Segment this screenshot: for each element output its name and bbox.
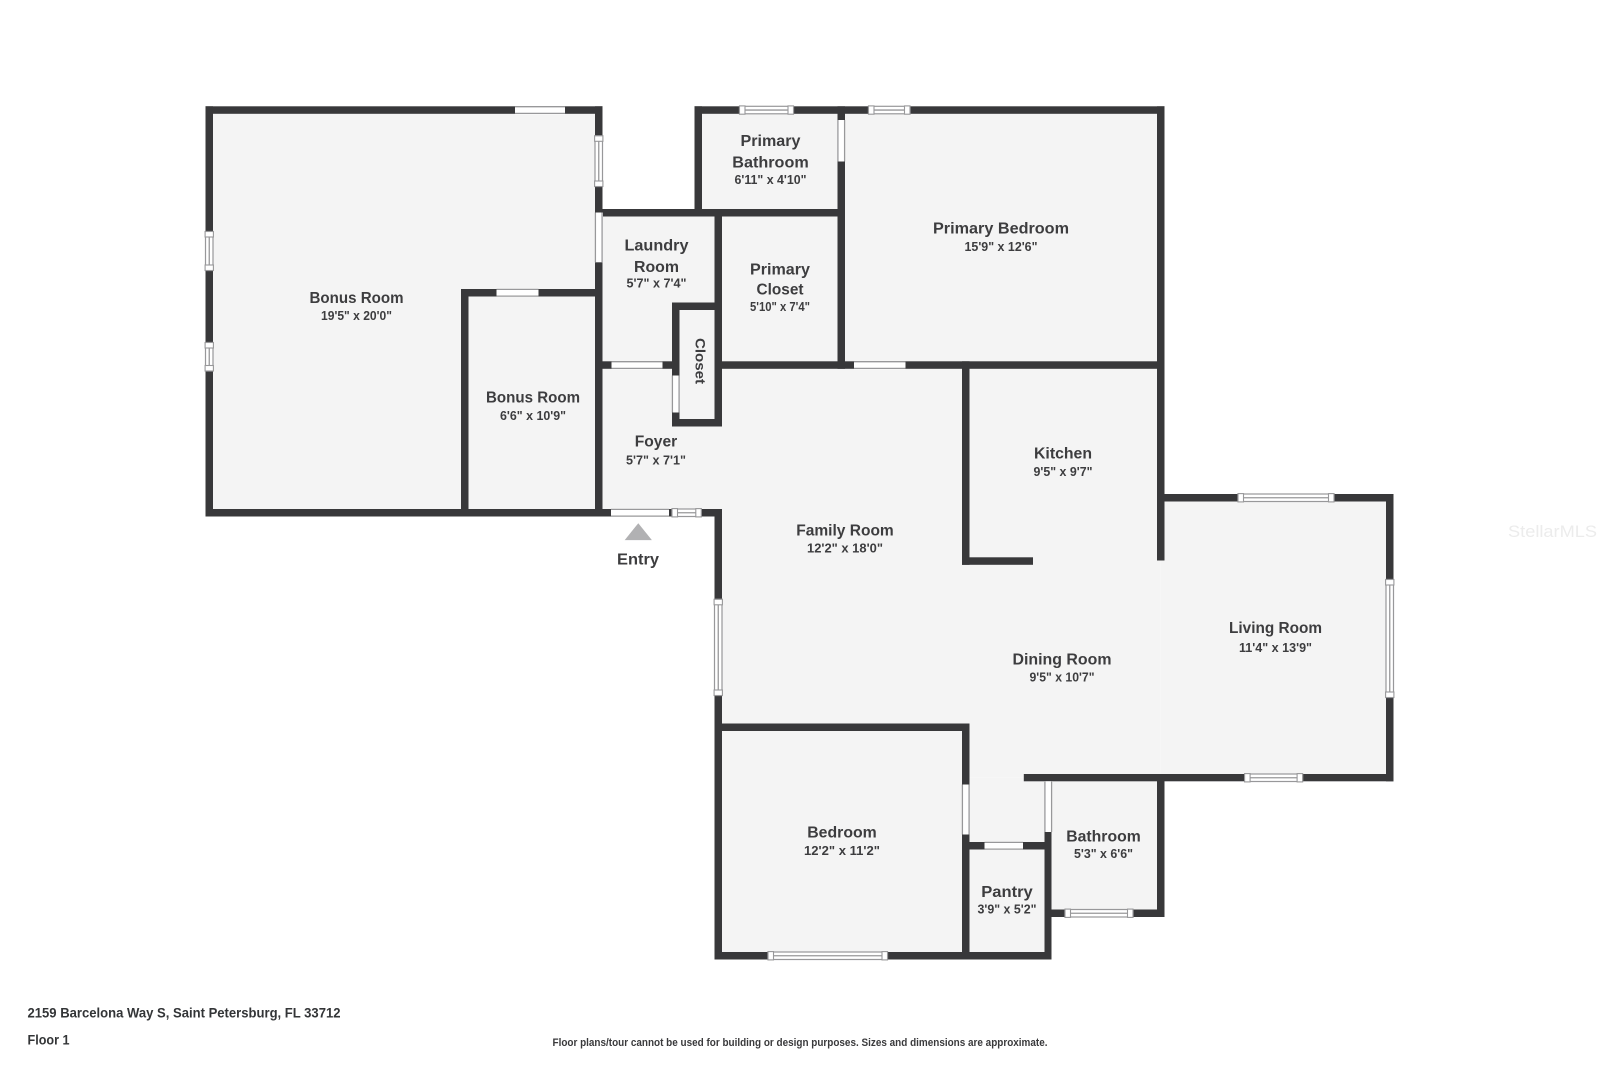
svg-text:12'2" x 11'2": 12'2" x 11'2": [804, 844, 880, 858]
svg-text:Bonus Room: Bonus Room: [486, 390, 580, 407]
svg-text:Bathroom: Bathroom: [1066, 829, 1141, 846]
svg-text:Bathroom: Bathroom: [732, 155, 809, 172]
svg-text:9'5" x 9'7": 9'5" x 9'7": [1034, 465, 1093, 479]
svg-text:Floor 1: Floor 1: [28, 1032, 70, 1048]
svg-text:Family Room: Family Room: [796, 523, 894, 540]
svg-text:StellarMLS: StellarMLS: [1508, 522, 1597, 541]
svg-text:Floor plans/tour cannot be use: Floor plans/tour cannot be used for buil…: [553, 1037, 1048, 1049]
svg-text:Closet: Closet: [757, 282, 804, 299]
svg-text:12'2" x 18'0": 12'2" x 18'0": [807, 542, 883, 556]
svg-text:15'9" x 12'6": 15'9" x 12'6": [965, 240, 1038, 254]
svg-text:Room: Room: [634, 259, 679, 276]
svg-text:Entry: Entry: [617, 552, 659, 569]
svg-text:Bonus Room: Bonus Room: [310, 290, 404, 307]
svg-text:5'7" x 7'4": 5'7" x 7'4": [627, 277, 687, 291]
svg-text:5'7" x 7'1": 5'7" x 7'1": [626, 454, 686, 468]
svg-text:Primary: Primary: [741, 133, 801, 150]
svg-text:Kitchen: Kitchen: [1034, 446, 1092, 463]
svg-text:5'3" x 6'6": 5'3" x 6'6": [1074, 847, 1133, 861]
svg-text:19'5" x 20'0": 19'5" x 20'0": [321, 309, 392, 323]
svg-text:Living Room: Living Room: [1229, 620, 1322, 637]
svg-text:Foyer: Foyer: [635, 434, 678, 451]
svg-text:Primary: Primary: [750, 262, 810, 279]
svg-text:Bedroom: Bedroom: [807, 825, 877, 842]
svg-text:11'4" x 13'9": 11'4" x 13'9": [1239, 641, 1312, 655]
svg-text:Laundry: Laundry: [625, 238, 689, 255]
svg-text:5'10" x 7'4": 5'10" x 7'4": [750, 300, 810, 314]
svg-text:6'11" x 4'10": 6'11" x 4'10": [735, 173, 807, 187]
svg-text:2159 Barcelona Way S, Saint Pe: 2159 Barcelona Way S, Saint Petersburg, …: [28, 1005, 341, 1021]
svg-text:9'5" x 10'7": 9'5" x 10'7": [1030, 671, 1095, 685]
svg-text:Primary Bedroom: Primary Bedroom: [933, 221, 1069, 238]
svg-text:Dining Room: Dining Room: [1013, 652, 1112, 669]
svg-text:Closet: Closet: [693, 338, 709, 384]
svg-text:Pantry: Pantry: [981, 884, 1033, 901]
svg-text:3'9" x 5'2": 3'9" x 5'2": [978, 903, 1037, 917]
svg-text:6'6" x 10'9": 6'6" x 10'9": [500, 409, 566, 423]
